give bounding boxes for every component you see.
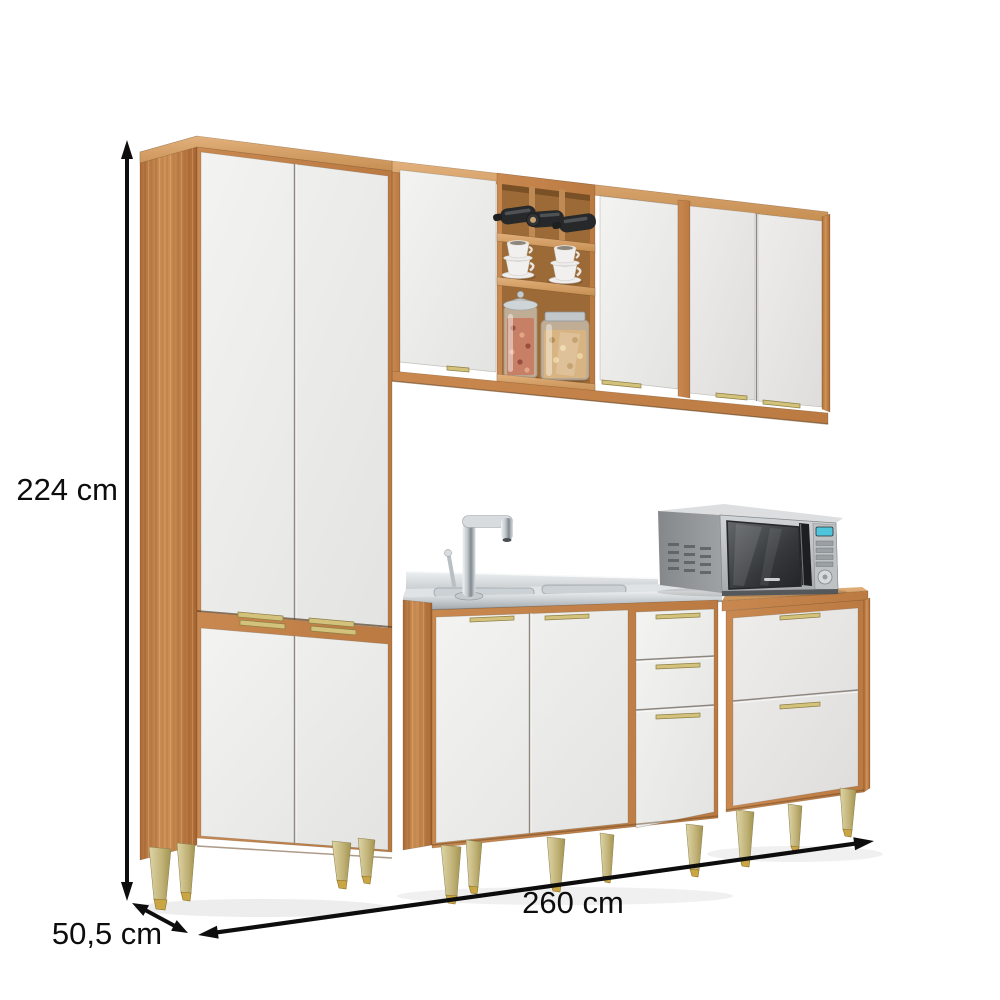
food-jar-tall bbox=[503, 291, 539, 381]
microwave bbox=[657, 504, 847, 597]
cabinet-leg bbox=[840, 788, 856, 837]
food-jar-wide bbox=[541, 312, 589, 383]
cabinet-leg bbox=[149, 847, 171, 910]
arrowhead-left bbox=[198, 926, 219, 939]
wall-cabinet-door-3 bbox=[690, 206, 755, 400]
cabinet-leg bbox=[358, 838, 375, 884]
wine-rack-shelf-module bbox=[492, 173, 597, 392]
microwave-control-panel bbox=[813, 524, 838, 591]
cabinet-leg bbox=[332, 841, 351, 889]
cabinet-right-edge bbox=[864, 598, 870, 792]
wall-cabinet bbox=[392, 161, 830, 424]
sink-cabinet-doors bbox=[436, 610, 628, 843]
width-label: 260 cm bbox=[522, 885, 624, 920]
drawer-stack bbox=[636, 609, 714, 828]
cabinet-leg bbox=[466, 840, 482, 894]
microwave-side bbox=[658, 511, 722, 593]
arrowhead-down bbox=[121, 882, 133, 901]
depth-label: 50,5 cm bbox=[52, 916, 162, 951]
arrowhead-right bbox=[853, 837, 874, 850]
microwave-knob-center bbox=[823, 575, 828, 580]
wood-grain bbox=[403, 600, 432, 850]
wood-grain bbox=[140, 136, 197, 860]
height-label: 224 cm bbox=[16, 472, 118, 507]
microwave-display bbox=[816, 527, 833, 536]
microwave-brand-mark bbox=[764, 578, 780, 581]
wall-cabinet-left-frame bbox=[392, 172, 400, 372]
wall-cabinet-right-frame bbox=[822, 214, 830, 412]
arrowhead-downright bbox=[171, 920, 188, 933]
cabinet-leg bbox=[177, 843, 195, 901]
cabinet-leg bbox=[788, 804, 802, 853]
arrowhead-up bbox=[121, 140, 133, 159]
cabinet-leg bbox=[686, 824, 703, 877]
wall-cabinet-mid-frame bbox=[678, 200, 690, 398]
drawer-base-cabinet bbox=[722, 587, 870, 867]
wall-cabinet-door-1 bbox=[400, 170, 496, 372]
wall-cabinet-door-4 bbox=[758, 214, 822, 407]
kitchen-cabinet-product-image: 224 cm 260 cm 50,5 cm bbox=[0, 0, 1000, 1000]
tall-pantry-cabinet bbox=[140, 136, 392, 910]
scene-canvas: 224 cm 260 cm 50,5 cm bbox=[0, 0, 1000, 1000]
wall-cabinet-door-2 bbox=[600, 196, 678, 389]
dimension-height: 224 cm bbox=[16, 140, 133, 901]
